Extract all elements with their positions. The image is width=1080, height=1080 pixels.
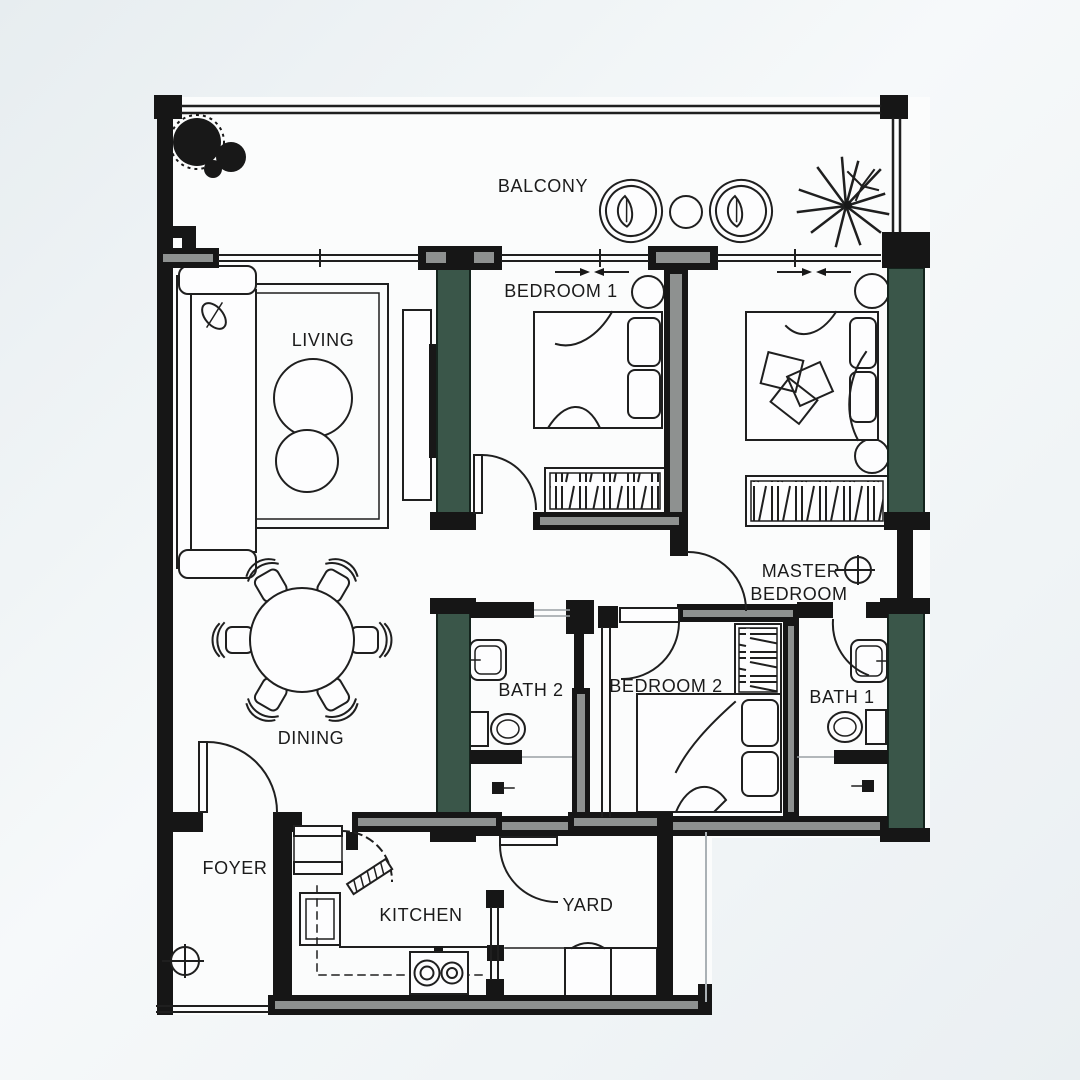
bedroom1-furniture <box>534 276 665 514</box>
room-label-bath2: BATH 2 <box>498 680 563 700</box>
stove <box>410 946 468 994</box>
sofa <box>177 266 256 578</box>
room-label-kitchen: KITCHEN <box>379 905 462 925</box>
coffee-table <box>274 359 352 437</box>
nightstand <box>855 439 889 473</box>
balcony-table <box>670 196 702 228</box>
room-label-bath1: BATH 1 <box>809 687 874 707</box>
wardrobe <box>735 624 781 696</box>
washing-machine <box>565 943 657 997</box>
room-label-master-line2: BEDROOM <box>750 584 847 604</box>
sink <box>470 640 506 680</box>
structure-panel <box>437 268 470 514</box>
room-label-master-line1: MASTER <box>762 561 841 581</box>
room-label-balcony: BALCONY <box>498 176 588 196</box>
dining-table <box>250 588 354 692</box>
nightstand <box>632 276 664 308</box>
coffee-table-small <box>276 430 338 492</box>
floor-plan-drawing: BALCONY LIVING BEDROOM 1 MASTER BEDROOM … <box>0 0 1080 1080</box>
wardrobe <box>545 468 665 514</box>
fridge <box>300 893 340 945</box>
pillow <box>742 752 778 796</box>
master-bedroom-furniture <box>746 274 889 526</box>
room-label-living: LIVING <box>292 330 355 350</box>
structure-panel <box>888 268 924 514</box>
pillow <box>742 700 778 746</box>
toilet <box>470 712 525 746</box>
pillow <box>850 372 876 422</box>
pillow <box>628 318 660 366</box>
room-label-bedroom1: BEDROOM 1 <box>504 281 617 301</box>
structure-panel <box>888 612 924 830</box>
toilet <box>828 710 886 744</box>
unit-footprint <box>157 97 930 1015</box>
wardrobe <box>746 476 888 526</box>
pillow <box>850 318 876 368</box>
pillow <box>628 370 660 418</box>
sink <box>851 640 887 682</box>
room-label-dining: DINING <box>278 728 345 748</box>
room-label-bedroom2: BEDROOM 2 <box>609 676 722 696</box>
room-label-foyer: FOYER <box>202 858 267 878</box>
room-label-yard: YARD <box>562 895 613 915</box>
floor-plan-page: BALCONY LIVING BEDROOM 1 MASTER BEDROOM … <box>0 0 1080 1080</box>
structure-panel <box>437 612 470 830</box>
nightstand <box>855 274 889 308</box>
